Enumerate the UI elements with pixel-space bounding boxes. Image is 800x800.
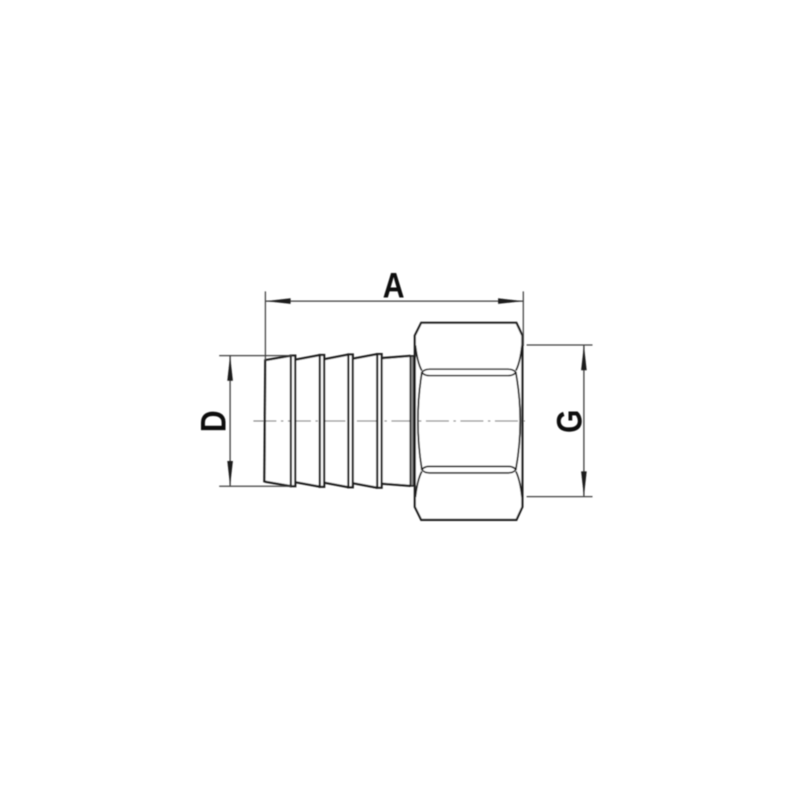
svg-text:D: D [193,410,233,432]
svg-text:A: A [383,265,405,305]
svg-text:G: G [549,410,589,433]
